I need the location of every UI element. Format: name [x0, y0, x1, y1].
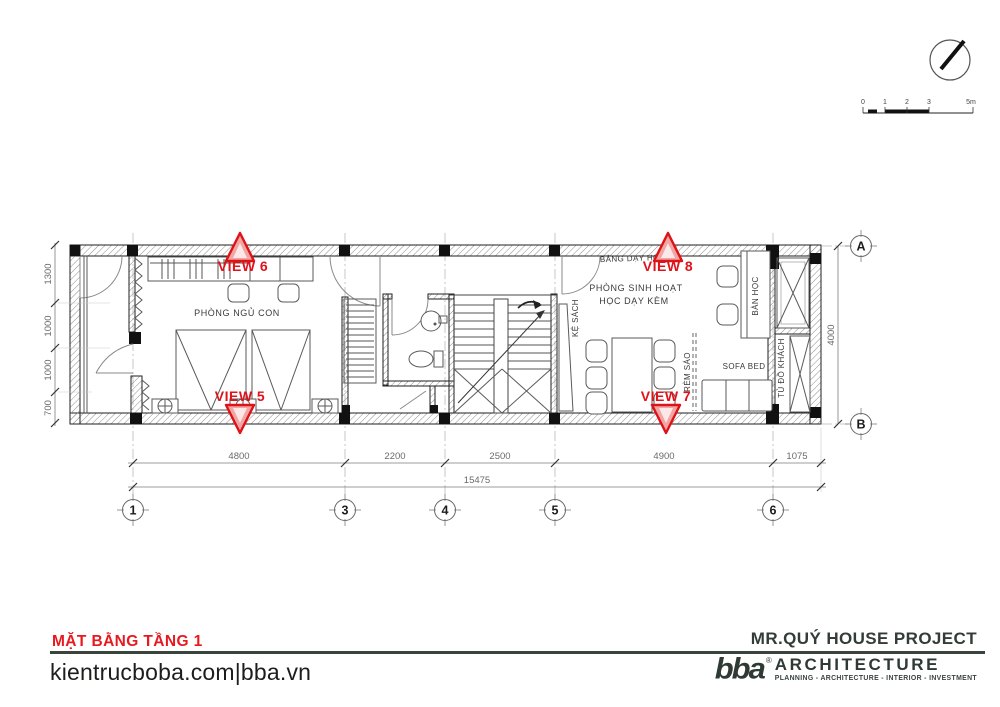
guest-closet	[790, 336, 810, 412]
main-stair	[454, 299, 551, 413]
floor-plan-sheet: PHÒNG NGỦ CON BẢNG DẠY HỌC PHÒNG SINH HO…	[0, 0, 1000, 707]
grid-bubble-6: 6	[757, 494, 789, 526]
view7-label: VIEW 7	[641, 388, 691, 404]
dim-1075: 1075	[786, 451, 807, 462]
living-room-label-line2: HỌC DẠY KÈM	[599, 296, 668, 306]
svg-text:B: B	[856, 418, 865, 432]
grid-bubble-3: 3	[329, 494, 361, 526]
dim-1000a: 1000	[43, 315, 54, 336]
svg-text:2: 2	[905, 99, 909, 106]
service-core	[344, 299, 447, 383]
dim-1000b: 1000	[43, 359, 54, 380]
dim-4900: 4900	[653, 451, 674, 462]
svg-text:3: 3	[342, 504, 349, 518]
living-room-label-line1: PHÒNG SINH HOẠT	[589, 283, 683, 293]
svg-text:0: 0	[861, 99, 865, 106]
sofa-bed-label: SOFA BED	[723, 362, 766, 371]
registered-mark-icon: ®	[766, 656, 772, 666]
dim-4000: 4000	[826, 324, 837, 345]
bookshelf-label: KỆ SÁCH	[571, 299, 580, 337]
svg-text:5m: 5m	[966, 99, 976, 106]
north-arrow-icon	[930, 40, 970, 80]
view8-label: VIEW 8	[643, 258, 693, 274]
stair-up-arrow-icon	[533, 300, 542, 309]
floor-plan-drawing: PHÒNG NGỦ CON BẢNG DẠY HỌC PHÒNG SINH HO…	[0, 0, 1000, 707]
view6-label: VIEW 6	[218, 258, 268, 274]
dim-2500: 2500	[489, 451, 510, 462]
website-text[interactable]: kientrucboba.com|bba.vn	[50, 659, 311, 686]
dimensions-bottom: 4800 2200 2500 4900 1075 15475	[128, 428, 826, 492]
svg-text:5: 5	[552, 504, 559, 518]
grid-bubble-5: 5	[539, 494, 571, 526]
dim-2200: 2200	[384, 451, 405, 462]
shaft-x-icon	[777, 258, 809, 328]
dim-700: 700	[43, 400, 54, 416]
plan-title: MẶT BẰNG TẦNG 1	[52, 633, 203, 651]
dim-total-15475: 15475	[464, 475, 490, 486]
dimensions-right: 4000	[826, 242, 842, 428]
blinds-label: RÈM SÁO	[683, 352, 692, 392]
study-desk-label: BÀN HỌC	[751, 276, 760, 315]
bba-logo-icon: bba	[715, 657, 764, 682]
svg-text:6: 6	[770, 504, 777, 518]
grid-bubble-4: 4	[429, 494, 461, 526]
scale-bar: 0 1 2 3 5m	[861, 99, 976, 114]
sink-icon	[421, 311, 447, 331]
bba-architecture-logo: bba ® ARCHITECTURE PLANNING - ARCHITECTU…	[715, 656, 977, 682]
bedroom-label: PHÒNG NGỦ CON	[194, 307, 280, 318]
grid-bubble-A: A	[845, 230, 877, 262]
dim-1300: 1300	[43, 263, 54, 284]
porch-glazing	[84, 256, 87, 413]
title-block-divider	[50, 651, 985, 654]
logo-tagline-text: PLANNING - ARCHITECTURE - INTERIOR - INV…	[775, 675, 977, 682]
view5-label: VIEW 5	[215, 388, 265, 404]
grid-bubble-1: 1	[117, 494, 149, 526]
svg-text:A: A	[856, 240, 865, 254]
svg-text:4: 4	[442, 504, 449, 518]
svg-text:1: 1	[883, 99, 887, 106]
guest-wardrobe-label: TỦ ĐỒ KHÁCH	[776, 338, 786, 398]
project-title: MR.QUÝ HOUSE PROJECT	[751, 629, 977, 649]
toilet-icon	[409, 351, 443, 367]
dim-4800: 4800	[228, 451, 249, 462]
svg-text:1: 1	[130, 504, 137, 518]
grid-bubble-B: B	[845, 408, 877, 440]
logo-brand-text: ARCHITECTURE	[775, 656, 977, 673]
svg-text:3: 3	[927, 99, 931, 106]
